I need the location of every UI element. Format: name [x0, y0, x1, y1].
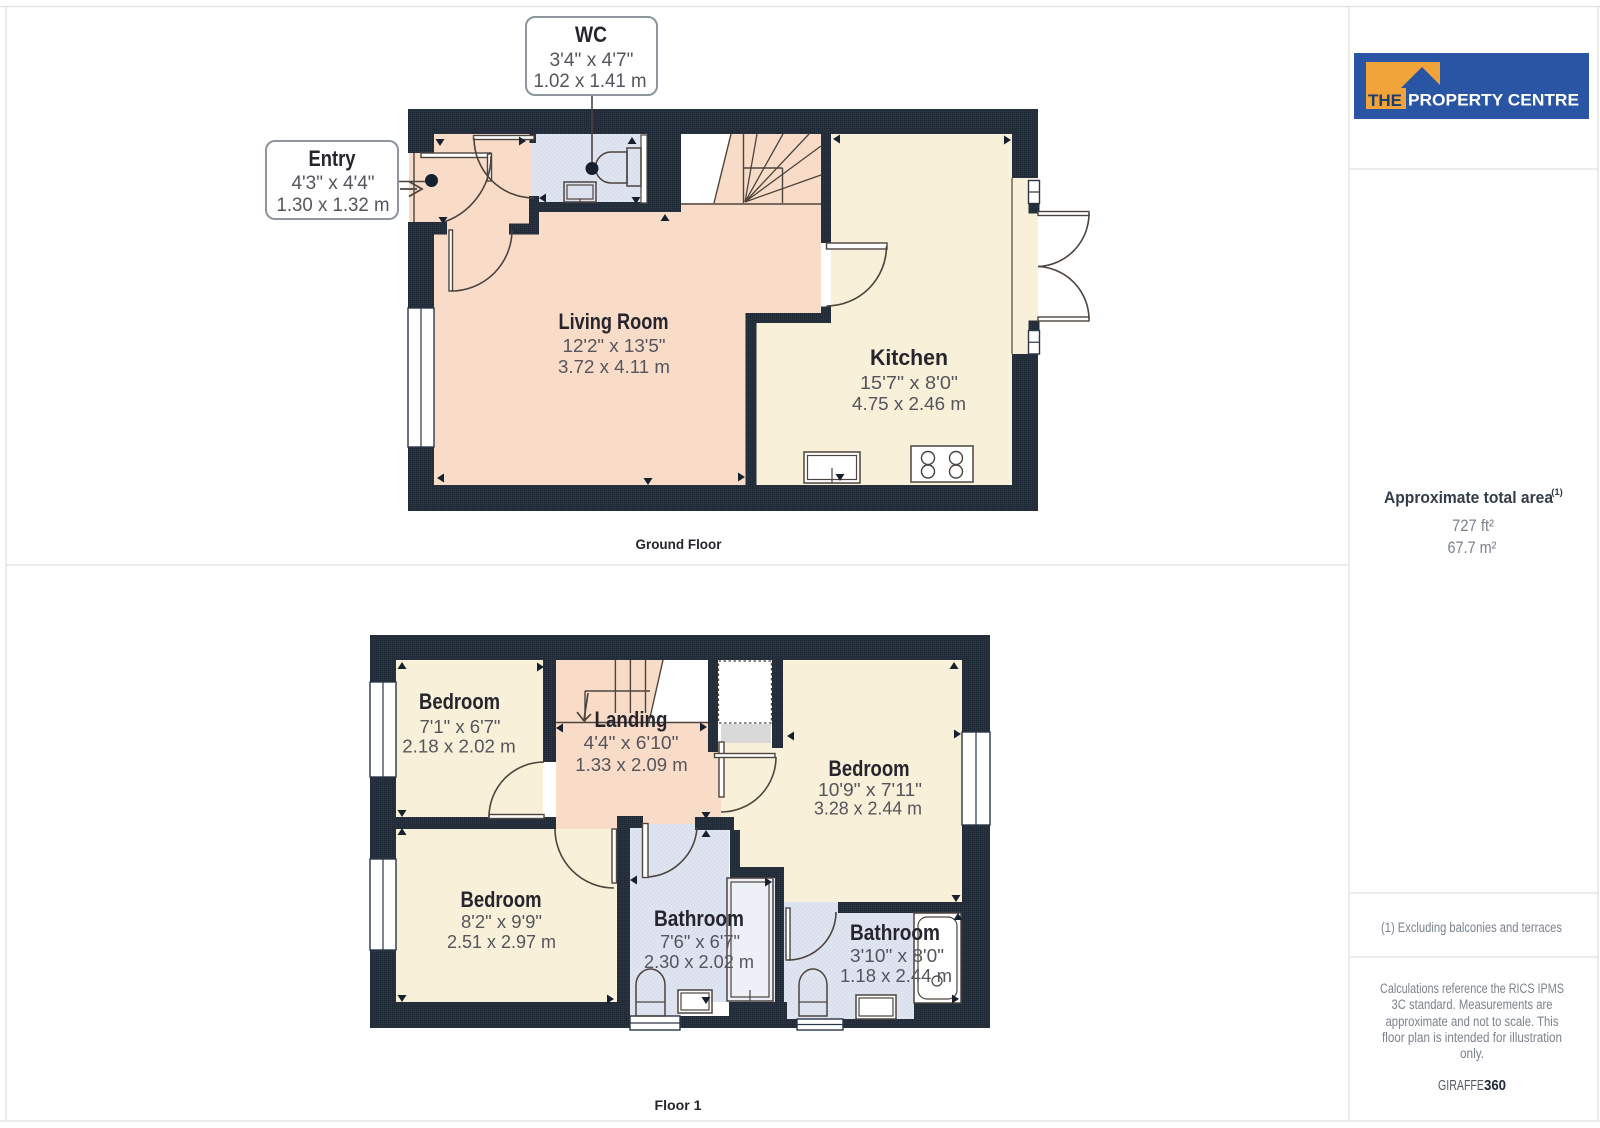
svg-text:floor plan is intended for ill: floor plan is intended for illustration — [1382, 1030, 1562, 1046]
svg-text:Bathroom: Bathroom — [850, 920, 940, 945]
svg-text:Approximate total area: Approximate total area — [1384, 488, 1553, 507]
svg-text:3'10" x 8'0": 3'10" x 8'0" — [850, 945, 944, 966]
svg-text:(1): (1) — [1551, 487, 1563, 498]
svg-text:4.75 x 2.46 m: 4.75 x 2.46 m — [852, 393, 966, 414]
svg-text:7'6" x 6'7": 7'6" x 6'7" — [660, 931, 740, 952]
svg-text:2.18 x 2.02 m: 2.18 x 2.02 m — [402, 736, 516, 757]
svg-text:Bathroom: Bathroom — [654, 906, 744, 931]
svg-text:1.30 x 1.32 m: 1.30 x 1.32 m — [277, 195, 390, 216]
svg-text:PROPERTY CENTRE: PROPERTY CENTRE — [1408, 91, 1579, 110]
svg-text:Living Room: Living Room — [559, 309, 669, 334]
svg-text:15'7" x 8'0": 15'7" x 8'0" — [860, 372, 958, 393]
svg-text:727 ft²: 727 ft² — [1452, 517, 1494, 535]
svg-text:2.51 x 2.97 m: 2.51 x 2.97 m — [447, 931, 556, 952]
svg-text:GIRAFFE: GIRAFFE — [1438, 1078, 1484, 1094]
svg-text:Kitchen: Kitchen — [870, 345, 948, 370]
svg-text:1.33 x 2.09 m: 1.33 x 2.09 m — [575, 754, 688, 775]
svg-text:WC: WC — [575, 22, 607, 47]
svg-text:Calculations reference the RIC: Calculations reference the RICS IPMS — [1380, 981, 1564, 997]
svg-text:360: 360 — [1484, 1078, 1506, 1094]
svg-text:3.28 x 2.44 m: 3.28 x 2.44 m — [814, 798, 922, 819]
svg-text:only.: only. — [1460, 1046, 1484, 1062]
svg-text:3.72 x 4.11 m: 3.72 x 4.11 m — [558, 356, 670, 377]
svg-text:7'1" x 6'7": 7'1" x 6'7" — [420, 716, 501, 737]
svg-text:1.18 x 2.44 m: 1.18 x 2.44 m — [840, 965, 952, 986]
svg-text:67.7 m²: 67.7 m² — [1448, 539, 1497, 557]
svg-text:Bedroom: Bedroom — [419, 689, 500, 714]
svg-text:4'4" x 6'10": 4'4" x 6'10" — [584, 732, 679, 753]
svg-text:Bedroom: Bedroom — [829, 756, 910, 781]
svg-text:1.02 x 1.41 m: 1.02 x 1.41 m — [534, 71, 647, 92]
svg-text:8'2" x 9'9": 8'2" x 9'9" — [461, 911, 542, 932]
svg-text:(1) Excluding balconies and te: (1) Excluding balconies and terraces — [1381, 920, 1562, 936]
svg-text:Entry: Entry — [309, 146, 357, 171]
svg-text:THE: THE — [1368, 91, 1402, 110]
svg-text:4'3" x 4'4": 4'3" x 4'4" — [292, 173, 375, 194]
svg-text:approximate and not to scale.: approximate and not to scale. This — [1386, 1014, 1559, 1030]
svg-text:3C standard. Measurements are: 3C standard. Measurements are — [1392, 997, 1553, 1013]
svg-text:Floor 1: Floor 1 — [655, 1097, 702, 1113]
svg-text:Landing: Landing — [595, 707, 668, 732]
svg-text:3'4" x 4'7": 3'4" x 4'7" — [550, 50, 634, 71]
svg-text:Ground Floor: Ground Floor — [636, 536, 723, 552]
svg-text:12'2" x 13'5": 12'2" x 13'5" — [563, 335, 666, 356]
svg-text:2.30 x 2.02 m: 2.30 x 2.02 m — [644, 951, 754, 972]
svg-text:Bedroom: Bedroom — [461, 887, 542, 912]
